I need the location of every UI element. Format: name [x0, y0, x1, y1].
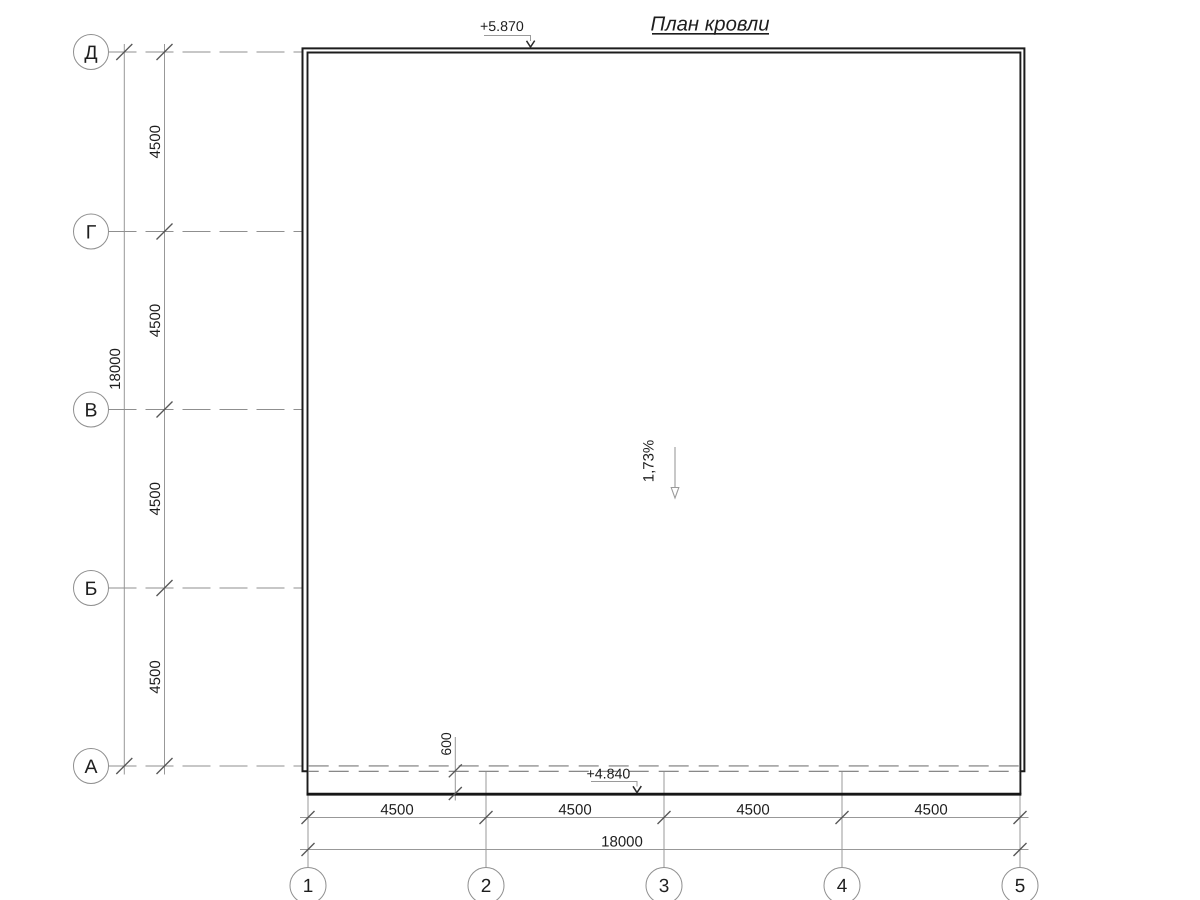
- svg-text:18000: 18000: [601, 834, 643, 851]
- svg-text:5: 5: [1015, 876, 1026, 897]
- svg-text:1,73%: 1,73%: [641, 440, 658, 483]
- svg-text:А: А: [84, 756, 97, 778]
- svg-text:4500: 4500: [147, 482, 164, 515]
- svg-text:4500: 4500: [147, 304, 164, 337]
- svg-text:4: 4: [837, 876, 848, 897]
- svg-text:2: 2: [481, 876, 492, 897]
- svg-text:Г: Г: [86, 221, 97, 243]
- svg-text:18000: 18000: [107, 348, 124, 390]
- svg-text:4500: 4500: [736, 802, 769, 819]
- svg-text:Д: Д: [84, 42, 97, 64]
- svg-text:4500: 4500: [558, 802, 591, 819]
- svg-text:4500: 4500: [380, 802, 413, 819]
- svg-text:4500: 4500: [147, 660, 164, 693]
- svg-text:+5.870: +5.870: [480, 19, 524, 35]
- svg-text:Б: Б: [85, 578, 98, 600]
- svg-text:600: 600: [438, 732, 454, 756]
- svg-text:1: 1: [303, 876, 314, 897]
- svg-text:3: 3: [659, 876, 670, 897]
- svg-text:План кровли: План кровли: [651, 14, 770, 36]
- svg-text:+4.840: +4.840: [587, 767, 631, 783]
- svg-text:4500: 4500: [147, 125, 164, 158]
- svg-text:В: В: [84, 399, 97, 421]
- svg-text:4500: 4500: [914, 802, 947, 819]
